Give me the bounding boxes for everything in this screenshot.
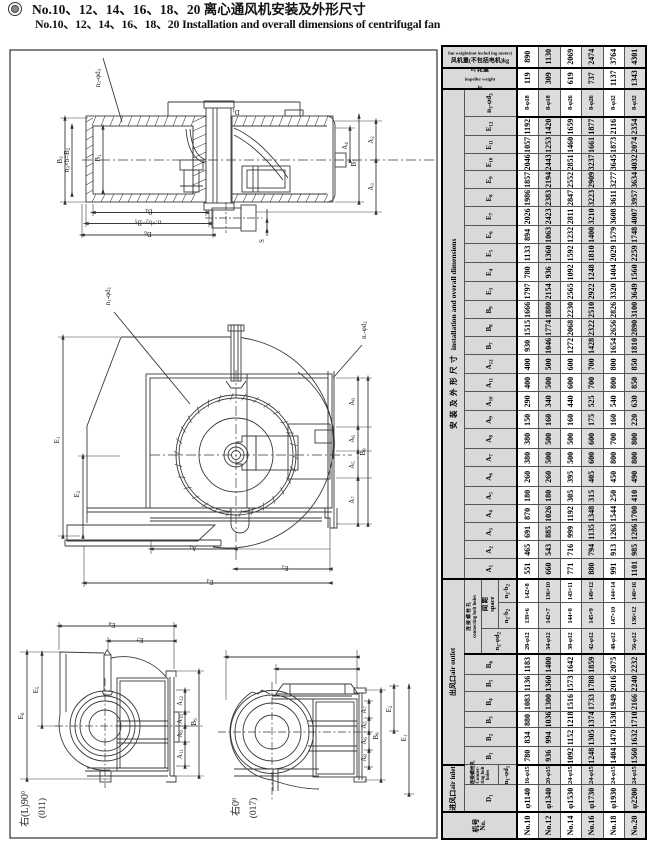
svg-text:(017): (017) bbox=[248, 798, 259, 819]
svg-text:n1-φd1: n1-φd1 bbox=[104, 286, 113, 305]
svg-text:A2: A2 bbox=[367, 136, 376, 144]
svg-text:A5: A5 bbox=[360, 721, 369, 729]
svg-text:B8: B8 bbox=[372, 732, 381, 740]
svg-text:E4: E4 bbox=[206, 577, 213, 586]
svg-text:A12: A12 bbox=[176, 695, 185, 706]
svg-text:n3×b=B2: n3×b=B2 bbox=[63, 147, 72, 172]
svg-text:A5: A5 bbox=[348, 461, 357, 469]
svg-text:E5: E5 bbox=[32, 686, 41, 693]
svg-text:E1: E1 bbox=[400, 734, 409, 741]
svg-text:E2: E2 bbox=[73, 490, 82, 497]
svg-text:E8: E8 bbox=[108, 620, 115, 629]
svg-text:n.×b2=B5: n.×b2=B5 bbox=[134, 218, 161, 227]
svg-text:D1: D1 bbox=[232, 107, 240, 116]
svg-text:A10: A10 bbox=[176, 713, 185, 724]
svg-text:B4: B4 bbox=[145, 207, 153, 216]
svg-text:A7: A7 bbox=[348, 496, 357, 504]
svg-text:B9: B9 bbox=[190, 718, 199, 726]
svg-text:A7: A7 bbox=[360, 706, 369, 714]
svg-text:A8: A8 bbox=[360, 754, 369, 762]
svg-text:右00: 右00 bbox=[229, 798, 242, 816]
svg-text:A8: A8 bbox=[348, 398, 357, 406]
svg-text:A4: A4 bbox=[341, 142, 350, 150]
svg-text:E6: E6 bbox=[17, 712, 26, 719]
svg-text:B6: B6 bbox=[144, 229, 152, 238]
svg-text:A11: A11 bbox=[176, 749, 185, 759]
svg-text:B7: B7 bbox=[350, 159, 359, 167]
svg-text:n.-φd2: n.-φd2 bbox=[360, 321, 369, 339]
svg-text:E3: E3 bbox=[281, 563, 288, 572]
svg-text:n3-φd3: n3-φd3 bbox=[94, 68, 103, 87]
svg-text:E1: E1 bbox=[53, 436, 62, 443]
svg-text:S: S bbox=[258, 239, 266, 243]
svg-text:A1: A1 bbox=[189, 543, 197, 552]
svg-text:右(L)900: 右(L)900 bbox=[18, 791, 31, 827]
svg-text:A6: A6 bbox=[348, 435, 357, 443]
svg-text:E2: E2 bbox=[385, 705, 394, 712]
svg-text:B8: B8 bbox=[359, 448, 368, 456]
svg-text:A3: A3 bbox=[367, 183, 376, 191]
svg-text:A9: A9 bbox=[176, 730, 185, 738]
svg-text:A6: A6 bbox=[360, 737, 369, 745]
svg-text:(011): (011) bbox=[37, 798, 48, 818]
svg-text:B1: B1 bbox=[94, 154, 103, 162]
svg-text:E7: E7 bbox=[136, 635, 143, 644]
